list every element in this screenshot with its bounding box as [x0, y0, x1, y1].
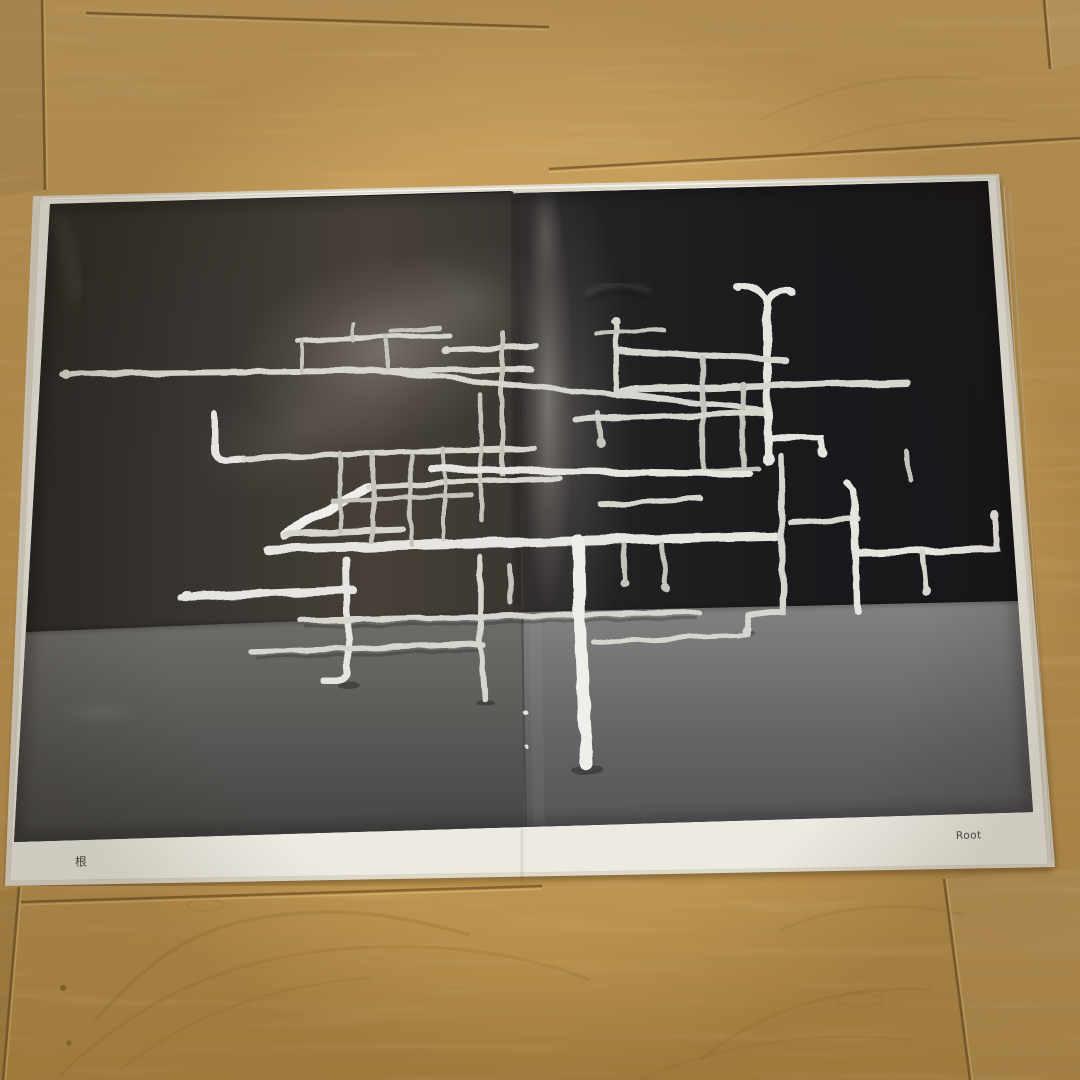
camera-vignette [0, 0, 1080, 1080]
photo-scene: 根 Root [0, 0, 1080, 1080]
scene-canvas: 根 Root [0, 0, 1080, 1080]
